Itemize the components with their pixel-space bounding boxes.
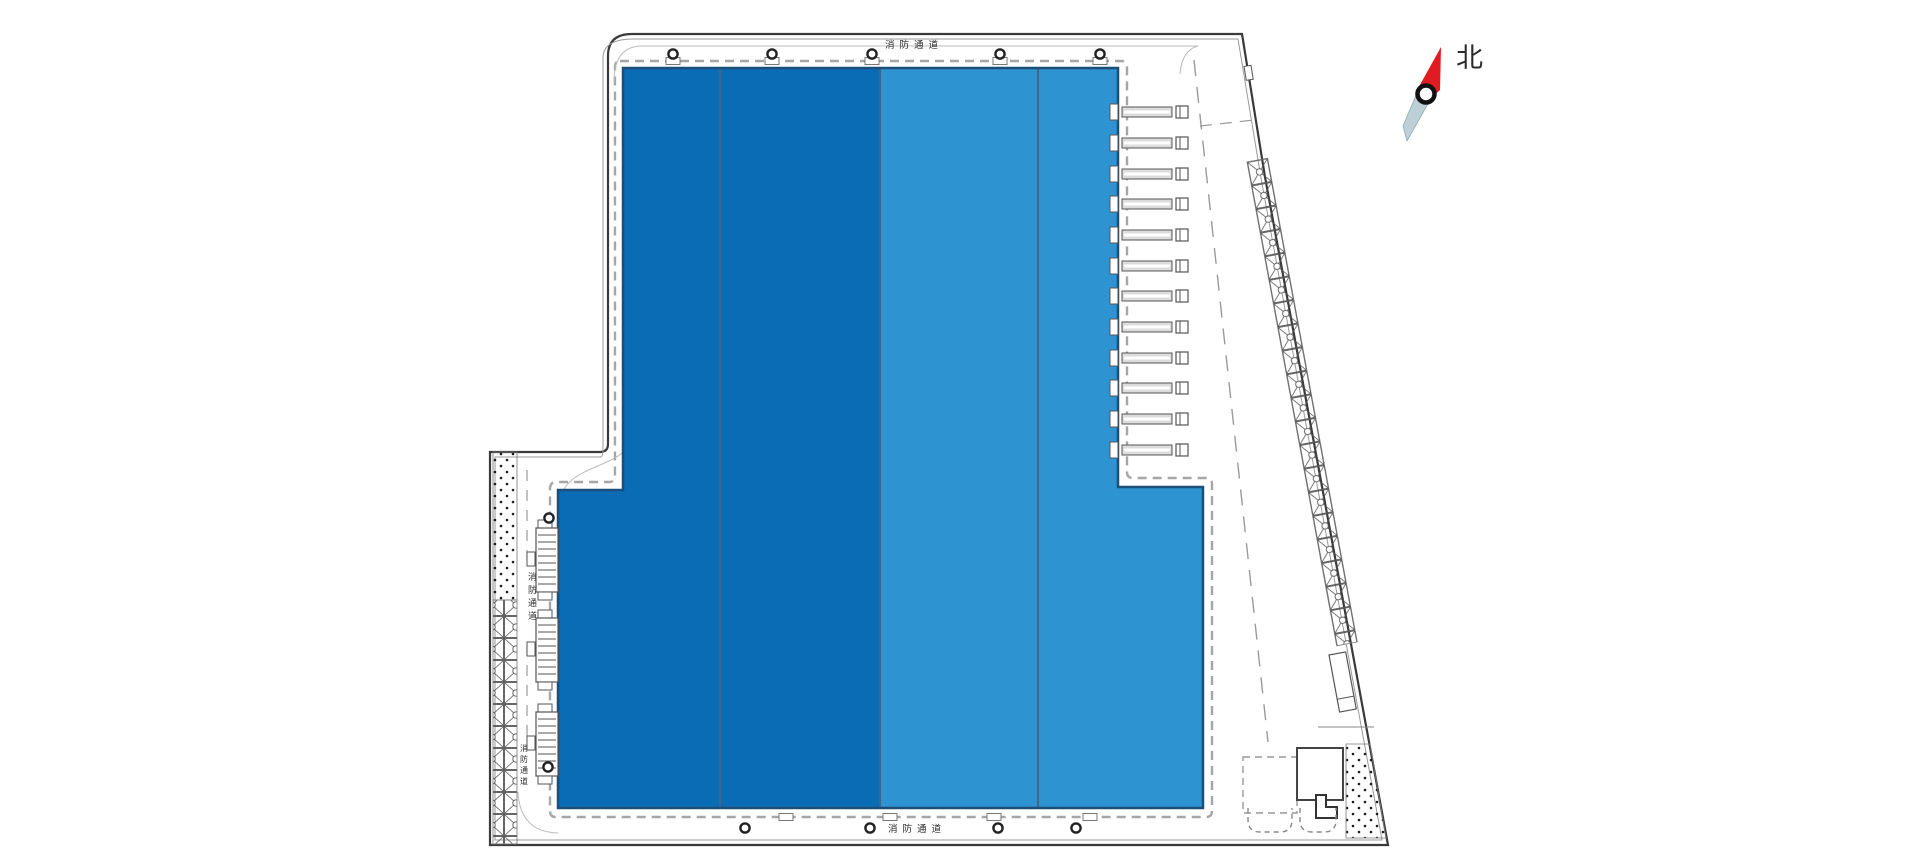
manhole-icon: [1095, 49, 1104, 58]
manhole-icon: [668, 49, 677, 58]
gatehouse: [1297, 748, 1343, 800]
warehouse-building: [558, 68, 1203, 808]
door-tab: [1083, 814, 1097, 821]
north-compass: 北: [1403, 43, 1483, 141]
manhole-icon: [767, 49, 776, 58]
manhole-icon: [867, 49, 876, 58]
fire-lane-label-left-lower: 消防通道: [520, 743, 529, 788]
manhole-icon: [544, 513, 553, 522]
fire-lane-label-bottom: 消防通道: [888, 823, 946, 835]
planting-strip-left: [493, 452, 517, 844]
fire-lane-label-left-upper: 消防通道: [527, 571, 537, 624]
fire-lane-label-top: 消防通道: [885, 39, 943, 51]
door-tab: [987, 814, 1001, 821]
site-plan-canvas: 消防通道 消防通道 消防通道 消防通道 北: [0, 0, 1920, 858]
manhole-icon: [993, 823, 1002, 832]
door-tab: [779, 814, 793, 821]
stipple-landscape-left: [493, 452, 517, 600]
tree-parking-strip-left: [493, 600, 517, 844]
manhole-icon: [865, 823, 874, 832]
dock-ramps-west: [527, 520, 558, 784]
manhole-icon: [740, 823, 749, 832]
door-tab: [883, 814, 897, 821]
stipple-landscape-gate: [1346, 744, 1386, 838]
site-plan-drawing: 消防通道 消防通道 消防通道 消防通道 北: [0, 0, 1920, 858]
manhole-icon: [543, 762, 552, 771]
manhole-icon: [1071, 823, 1080, 832]
manhole-icon: [995, 49, 1004, 58]
compass-hub: [1418, 86, 1435, 103]
north-label: 北: [1456, 43, 1483, 73]
